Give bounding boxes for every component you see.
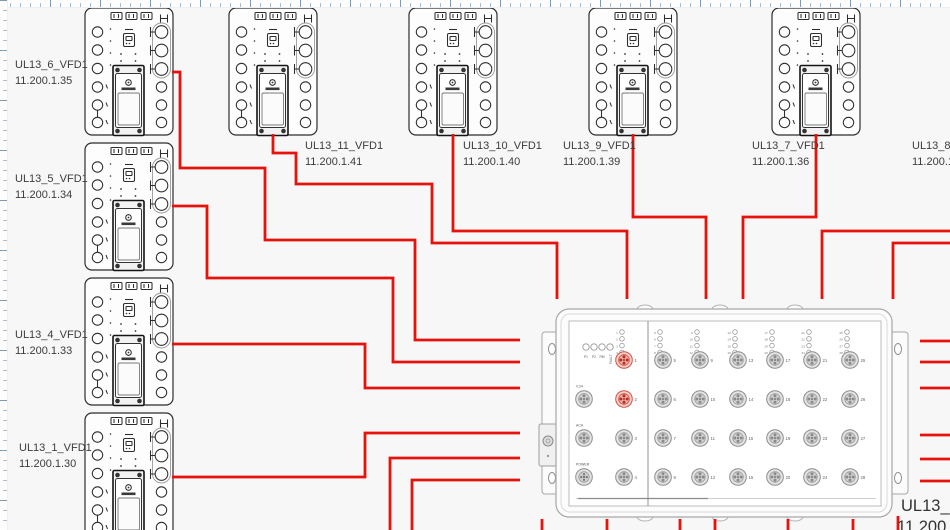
svg-text:18: 18 [786,397,791,402]
switch-port-6[interactable] [655,391,672,408]
svg-text:10: 10 [711,397,716,402]
vfd-device-UL13_6_VFD1[interactable] [85,8,173,136]
vfd-device-UL13_10_VFD1[interactable] [409,8,497,136]
vfd-device-UL13_11_VFD1[interactable] [229,8,317,136]
vfd-device-UL13_4_VFD1[interactable] [85,278,173,406]
svg-text:24: 24 [801,351,805,355]
svg-text:14: 14 [749,397,754,402]
svg-text:17: 17 [764,331,768,335]
svg-text:20: 20 [764,351,768,355]
svg-text:11: 11 [711,436,716,441]
svg-text:25: 25 [839,331,843,335]
svg-text:10: 10 [689,338,693,342]
svg-text:5: 5 [654,331,656,335]
vfd-device-UL13_1_VFD1[interactable] [85,413,173,530]
switch-port-16[interactable] [730,469,747,486]
switch-port-11[interactable] [692,430,709,447]
vfd-device-UL13_5_VFD1[interactable] [85,143,173,271]
svg-text:24: 24 [823,475,828,480]
switch-aux-port[interactable] [576,469,593,486]
switch-port-27[interactable] [842,430,859,447]
svg-text:P1: P1 [584,355,588,359]
svg-text:15: 15 [727,344,731,348]
svg-text:V.24: V.24 [576,385,583,389]
svg-text:19: 19 [786,436,791,441]
diagram-viewport: P1P2RMFAULT12341234V.24ACAPOWER567856789… [0,0,950,530]
switch-port-4[interactable] [616,469,633,486]
svg-text:23: 23 [823,436,828,441]
cable-UL13_9_VFD1[interactable] [633,134,706,299]
svg-text:8: 8 [654,351,656,355]
svg-text:22: 22 [801,338,805,342]
cable-bottom-feed-b[interactable] [412,480,520,530]
switch-port-13[interactable] [730,352,747,369]
svg-text:11: 11 [690,344,693,348]
svg-text:16: 16 [749,475,754,480]
vfd-device-UL13_9_VFD1[interactable] [589,8,677,136]
svg-text:26: 26 [861,397,866,402]
vfd-device-UL13_7_VFD1[interactable] [772,8,860,136]
switch-port-23[interactable] [804,430,821,447]
switch-aux-port[interactable] [576,391,593,408]
switch-port-28[interactable] [842,469,859,486]
svg-text:FAULT: FAULT [609,354,613,364]
cable-UL13_10_VFD1[interactable] [453,134,627,299]
switch-port-10[interactable] [692,391,709,408]
switch-port-12[interactable] [692,469,709,486]
svg-text:12: 12 [711,475,716,480]
switch-port-9[interactable] [692,352,709,369]
network-switch[interactable]: P1P2RMFAULT12341234V.24ACAPOWER567856789… [539,305,908,521]
svg-text:ACA: ACA [576,424,584,428]
svg-text:1: 1 [616,331,618,335]
svg-text:12: 12 [689,351,693,355]
switch-port-7[interactable] [655,430,672,447]
svg-text:2: 2 [616,338,618,342]
svg-text:7: 7 [654,344,656,348]
switch-port-21[interactable] [804,352,821,369]
svg-text:26: 26 [839,338,843,342]
switch-port-1[interactable] [616,352,633,369]
svg-text:15: 15 [749,436,754,441]
svg-text:28: 28 [839,351,843,355]
switch-port-15[interactable] [730,430,747,447]
cable-right-feed-a[interactable] [822,231,950,299]
switch-port-2[interactable] [616,391,633,408]
svg-text:27: 27 [861,436,866,441]
cable-bottom-feed-a[interactable] [390,458,520,530]
svg-text:21: 21 [801,331,805,335]
svg-text:18: 18 [764,338,768,342]
svg-text:14: 14 [727,338,731,342]
switch-port-24[interactable] [804,469,821,486]
svg-text:17: 17 [786,358,791,363]
svg-text:POWER: POWER [576,463,590,467]
switch-port-5[interactable] [655,352,672,369]
svg-text:13: 13 [749,358,754,363]
svg-text:27: 27 [839,344,843,348]
cable-UL13_1_VFD1[interactable] [172,433,520,477]
svg-text:9: 9 [691,331,693,335]
svg-text:3: 3 [616,344,618,348]
switch-port-20[interactable] [767,469,784,486]
svg-text:22: 22 [823,397,828,402]
switch-port-17[interactable] [767,352,784,369]
switch-port-22[interactable] [804,391,821,408]
svg-text:19: 19 [764,344,768,348]
cable-right-feed-b[interactable] [893,243,950,299]
switch-port-8[interactable] [655,469,672,486]
svg-text:21: 21 [823,358,828,363]
svg-text:25: 25 [861,358,866,363]
switch-aux-port[interactable] [576,430,593,447]
switch-port-25[interactable] [842,352,859,369]
cable-UL13_4_VFD1[interactable] [172,344,520,388]
svg-text:P2: P2 [592,355,596,359]
svg-text:13: 13 [727,331,731,335]
switch-port-14[interactable] [730,391,747,408]
diagram-canvas[interactable]: P1P2RMFAULT12341234V.24ACAPOWER567856789… [0,0,950,530]
switch-port-19[interactable] [767,430,784,447]
cable-UL13_7_VFD1[interactable] [743,134,816,299]
svg-text:23: 23 [801,344,805,348]
svg-text:20: 20 [786,475,791,480]
switch-port-26[interactable] [842,391,859,408]
svg-text:16: 16 [727,351,731,355]
svg-text:RM: RM [600,355,605,359]
switch-port-3[interactable] [616,430,633,447]
svg-text:28: 28 [861,475,866,480]
svg-text:6: 6 [654,338,656,342]
switch-port-18[interactable] [767,391,784,408]
